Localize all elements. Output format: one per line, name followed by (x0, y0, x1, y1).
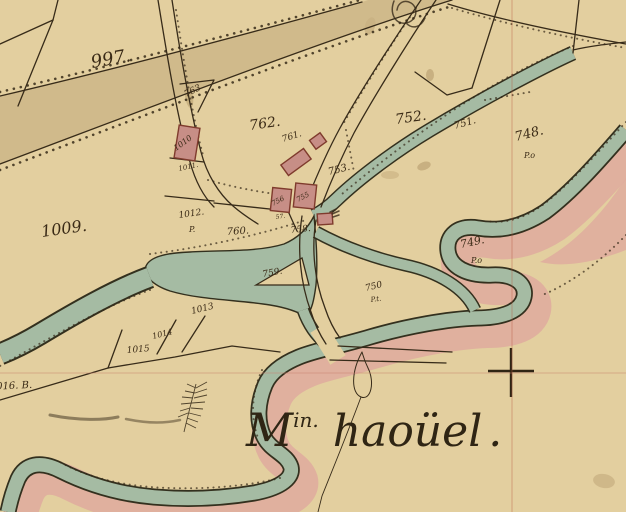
annotation-superscript: in. (293, 408, 319, 432)
parcel-label: P. (188, 225, 195, 234)
parcel-label: P.o (523, 151, 535, 160)
place-name-annotation: Min.haoüel. (245, 403, 502, 457)
annotation-period: . (488, 406, 502, 457)
annotation-abbr: M (245, 403, 295, 457)
building-mill (317, 213, 333, 225)
paper-stain (381, 171, 399, 179)
annotation-name: haoüel (333, 406, 483, 457)
map-sheet: 997.763762.761.753.752.751.748.P.o749.P.… (0, 0, 626, 512)
parcel-label: 1015 (126, 344, 150, 356)
parcel-label: P.t. (369, 295, 382, 305)
cadastral-map-canvas: 997.763762.761.753.752.751.748.P.o749.P.… (0, 0, 626, 512)
parcel-label: P.o (470, 256, 482, 265)
parcel-label: 1016. B. (0, 380, 32, 393)
parcel-label: 758. (290, 224, 311, 236)
parcel-label: 57. (275, 213, 286, 221)
parcel-label: 760. (226, 225, 249, 238)
paper-stain (426, 69, 434, 81)
